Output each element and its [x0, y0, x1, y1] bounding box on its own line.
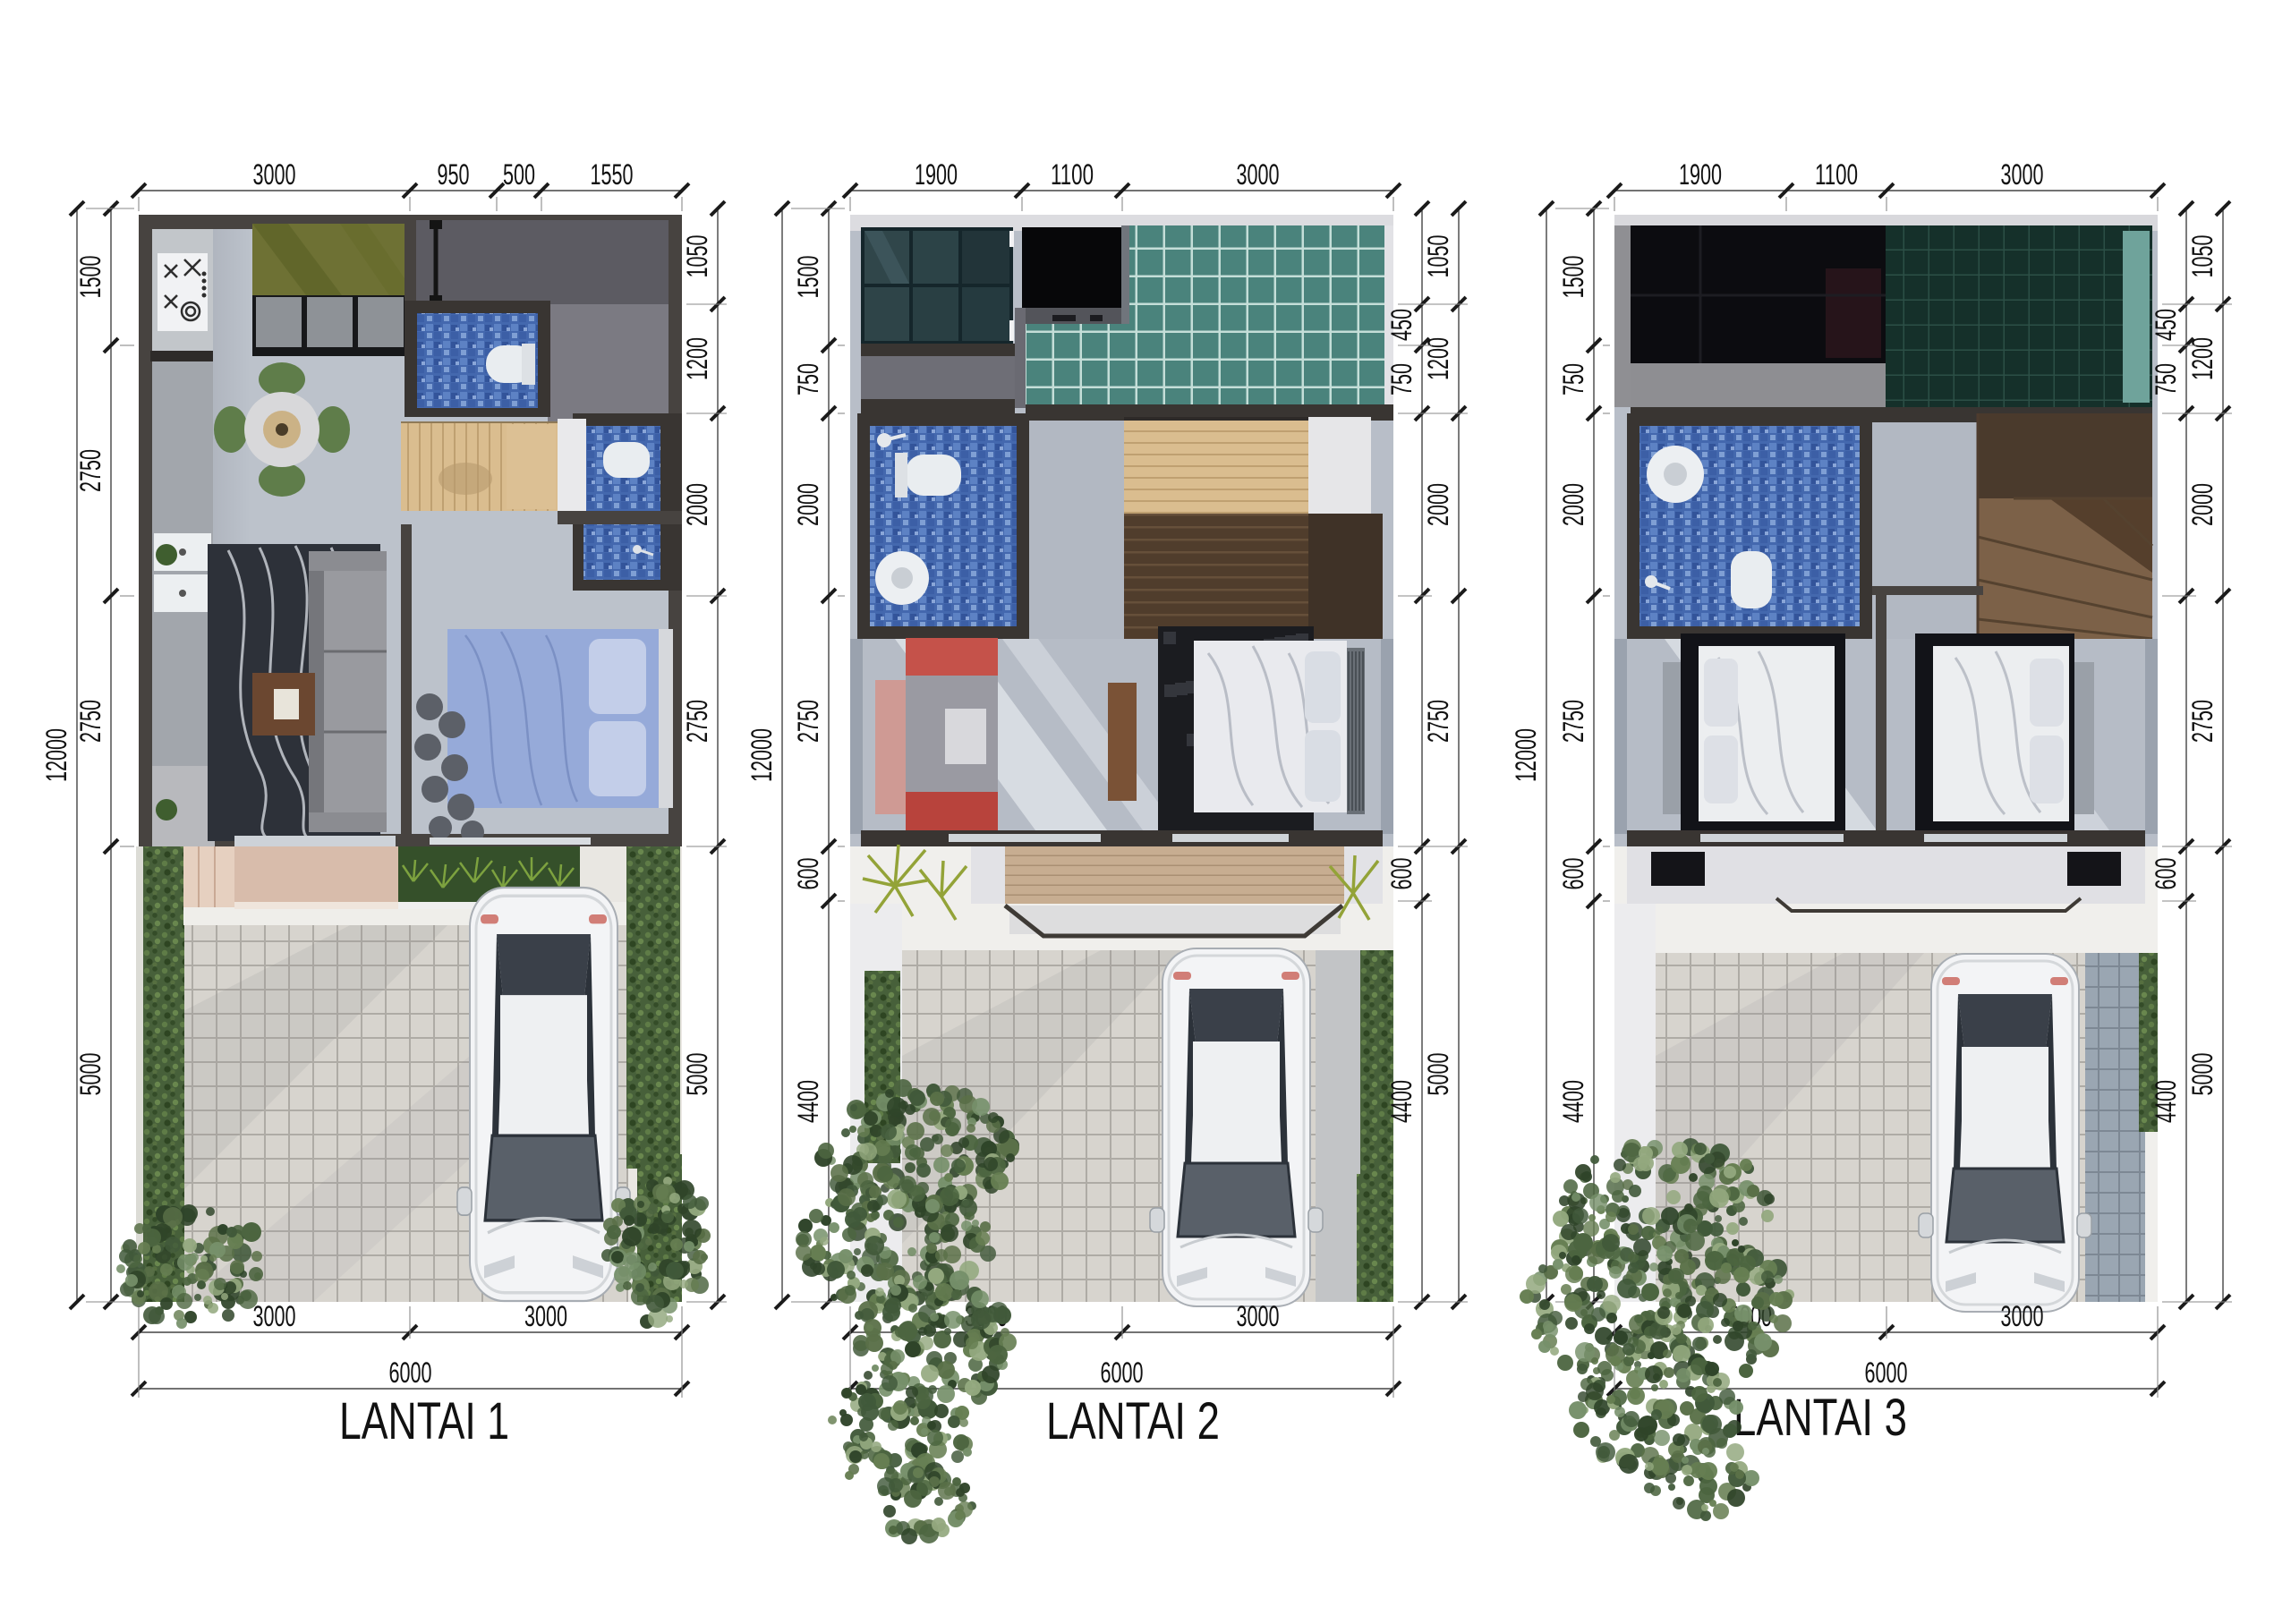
- svg-text:1200: 1200: [681, 337, 713, 380]
- svg-text:4400: 4400: [792, 1080, 824, 1123]
- svg-text:12000: 12000: [745, 728, 778, 782]
- svg-text:1900: 1900: [1679, 158, 1722, 191]
- svg-text:4400: 4400: [1385, 1080, 1418, 1123]
- svg-text:1050: 1050: [2186, 235, 2219, 278]
- svg-text:LANTAI 2: LANTAI 2: [1046, 1392, 1220, 1450]
- svg-text:6000: 6000: [1101, 1356, 1144, 1389]
- svg-text:4400: 4400: [1557, 1080, 1589, 1123]
- svg-text:2750: 2750: [681, 700, 713, 743]
- svg-text:600: 600: [792, 858, 824, 890]
- svg-text:750: 750: [1385, 363, 1418, 395]
- svg-text:2000: 2000: [1422, 483, 1454, 526]
- svg-text:2000: 2000: [792, 483, 824, 526]
- svg-text:LANTAI 3: LANTAI 3: [1733, 1389, 1907, 1447]
- svg-text:2750: 2750: [1422, 700, 1454, 743]
- svg-text:750: 750: [792, 363, 824, 395]
- svg-text:6000: 6000: [1865, 1356, 1908, 1389]
- svg-text:1900: 1900: [915, 158, 958, 191]
- svg-text:2000: 2000: [681, 483, 713, 526]
- svg-text:3000: 3000: [2001, 1300, 2044, 1332]
- svg-text:1500: 1500: [1557, 256, 1589, 299]
- svg-text:6000: 6000: [389, 1356, 432, 1389]
- svg-text:5000: 5000: [2186, 1053, 2219, 1096]
- svg-text:12000: 12000: [1510, 728, 1542, 782]
- svg-text:3000: 3000: [1237, 1300, 1280, 1332]
- svg-text:3000: 3000: [253, 1300, 296, 1332]
- svg-text:3000: 3000: [2001, 158, 2044, 191]
- svg-text:1200: 1200: [1422, 337, 1454, 380]
- svg-text:1200: 1200: [2186, 337, 2219, 380]
- svg-text:4400: 4400: [2150, 1080, 2182, 1123]
- svg-text:450: 450: [2150, 309, 2182, 341]
- svg-text:950: 950: [438, 158, 470, 191]
- svg-text:2750: 2750: [792, 700, 824, 743]
- svg-text:1500: 1500: [74, 256, 106, 299]
- svg-text:2000: 2000: [2186, 483, 2219, 526]
- svg-text:3000: 3000: [524, 1300, 567, 1332]
- svg-text:12000: 12000: [40, 728, 72, 782]
- svg-text:1050: 1050: [1422, 235, 1454, 278]
- svg-text:600: 600: [1385, 858, 1418, 890]
- svg-text:2750: 2750: [74, 700, 106, 743]
- svg-text:750: 750: [1557, 363, 1589, 395]
- svg-text:2000: 2000: [1557, 483, 1589, 526]
- svg-text:5000: 5000: [681, 1053, 713, 1096]
- svg-text:500: 500: [503, 158, 535, 191]
- svg-text:3000: 3000: [253, 158, 296, 191]
- svg-text:600: 600: [1557, 858, 1589, 890]
- svg-text:1100: 1100: [1815, 158, 1858, 191]
- svg-text:LANTAI 1: LANTAI 1: [339, 1392, 509, 1450]
- svg-text:1050: 1050: [681, 235, 713, 278]
- svg-text:450: 450: [1385, 309, 1418, 341]
- svg-text:5000: 5000: [74, 1053, 106, 1096]
- svg-text:2750: 2750: [1557, 700, 1589, 743]
- svg-text:2750: 2750: [74, 449, 106, 492]
- svg-text:1500: 1500: [792, 256, 824, 299]
- svg-text:1100: 1100: [1051, 158, 1094, 191]
- svg-text:3000: 3000: [1237, 158, 1280, 191]
- svg-text:750: 750: [2150, 363, 2182, 395]
- svg-text:600: 600: [2150, 858, 2182, 890]
- svg-text:5000: 5000: [1422, 1053, 1454, 1096]
- svg-text:1550: 1550: [591, 158, 634, 191]
- svg-text:2750: 2750: [2186, 700, 2219, 743]
